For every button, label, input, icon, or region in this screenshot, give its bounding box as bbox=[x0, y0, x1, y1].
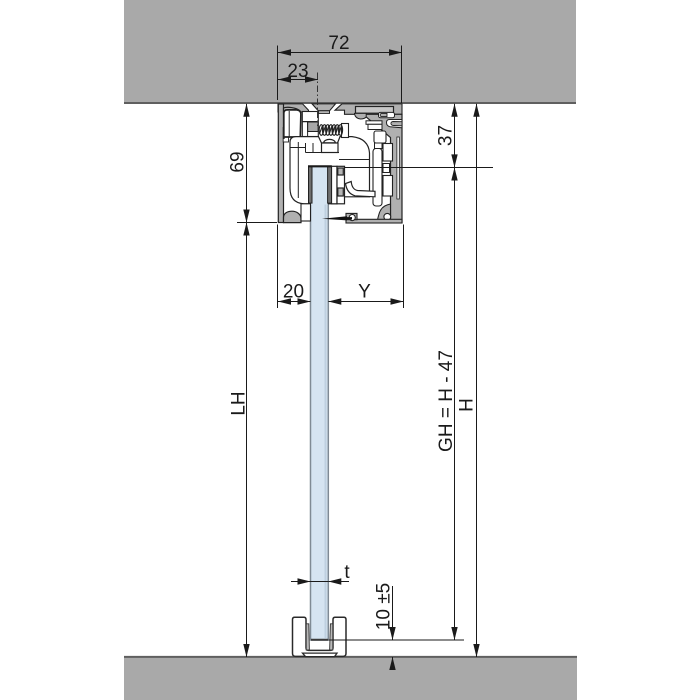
svg-text:10 ±5: 10 ±5 bbox=[374, 583, 395, 630]
svg-text:37: 37 bbox=[436, 125, 457, 146]
svg-text:72: 72 bbox=[328, 33, 349, 54]
svg-text:Y: Y bbox=[358, 282, 371, 303]
svg-text:GH = H - 47: GH = H - 47 bbox=[436, 350, 457, 452]
svg-text:23: 23 bbox=[287, 61, 308, 82]
svg-text:H: H bbox=[457, 398, 478, 412]
svg-text:69: 69 bbox=[228, 151, 249, 172]
svg-text:20: 20 bbox=[283, 282, 304, 303]
svg-text:t: t bbox=[344, 562, 350, 583]
svg-text:LH: LH bbox=[229, 391, 250, 415]
